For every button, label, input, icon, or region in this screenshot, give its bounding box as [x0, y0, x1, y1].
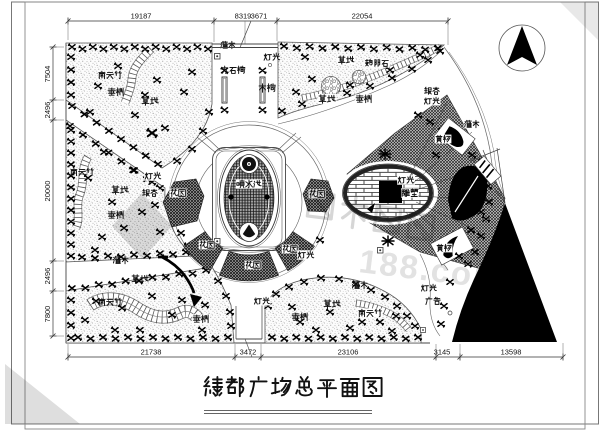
- svg-text:22054: 22054: [352, 12, 373, 21]
- svg-text:21738: 21738: [141, 348, 162, 357]
- svg-text:3472: 3472: [240, 348, 257, 357]
- svg-text:2496: 2496: [43, 102, 52, 119]
- svg-text:19187: 19187: [131, 12, 152, 21]
- svg-text:2496: 2496: [43, 268, 52, 285]
- svg-text:20000: 20000: [43, 181, 52, 202]
- svg-text:7504: 7504: [43, 66, 52, 83]
- svg-text:3145: 3145: [434, 348, 451, 357]
- svg-text:8319: 8319: [235, 12, 252, 21]
- svg-text:3671: 3671: [251, 12, 268, 21]
- svg-text:13598: 13598: [501, 348, 522, 357]
- svg-text:23106: 23106: [338, 348, 359, 357]
- svg-text:7800: 7800: [43, 306, 52, 323]
